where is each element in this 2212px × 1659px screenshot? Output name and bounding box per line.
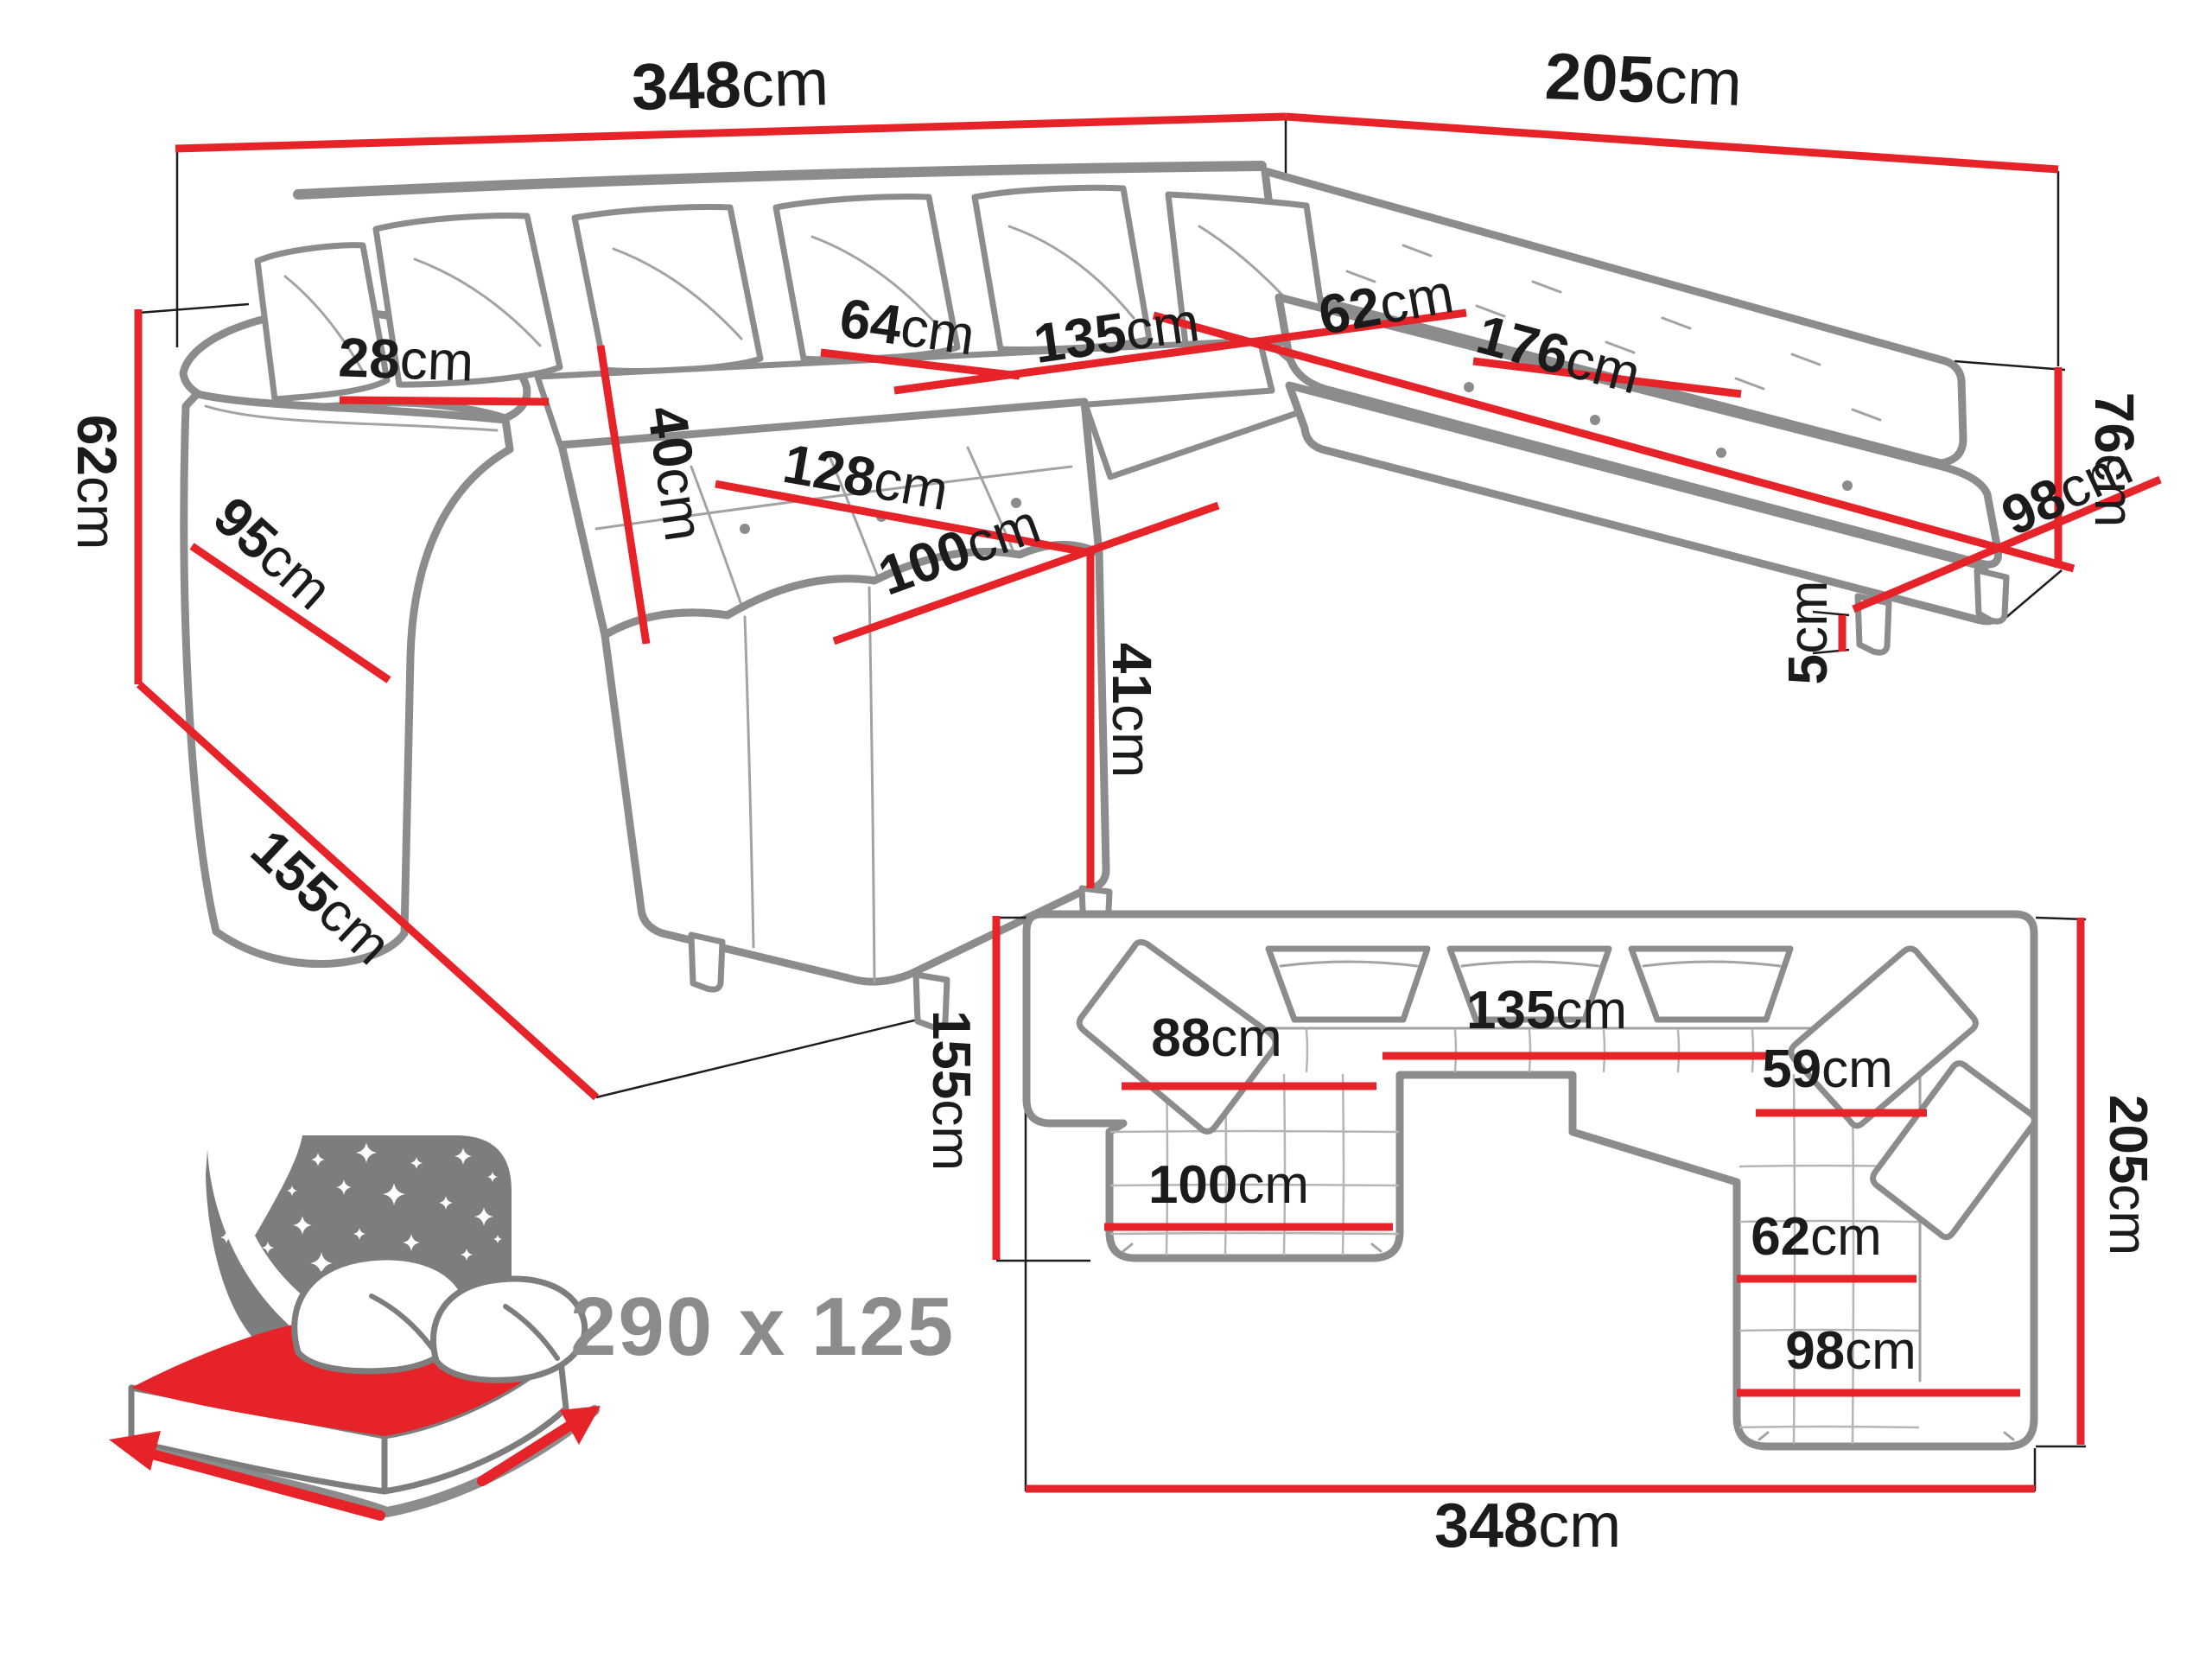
tick-armrest-top [138,304,249,313]
dim-label-41: 41cm [1101,643,1163,779]
plan-label-205: 205cm [2098,1095,2158,1255]
dim-line-28 [340,400,549,402]
tuft-button [740,524,750,534]
sofa-perspective [183,166,2006,1027]
tick-chaise-floor [596,1020,918,1097]
plan-label-135: 135cm [1466,981,1627,1040]
tick-backrest-bottom [2005,570,2062,619]
tuft-button [1716,448,1726,458]
dim-label-348: 348cm [631,46,829,124]
tuft-button [1464,382,1474,392]
tuft-button [1842,480,1853,491]
diagram-page: 348cm 205cm 76cm 62cm 95cm 155cm 28cm 40… [0,0,2212,1659]
dim-label-28: 28cm [338,326,475,392]
plan-label-59: 59cm [1762,1039,1893,1099]
bed-arrowhead-left [109,1431,161,1471]
dim-label-98: 98cm [1993,434,2141,547]
top-view: 155cm 88cm 135cm 59cm 100cm 62cm 98cm 20… [921,914,2158,1560]
dim-line-205 [1286,117,2058,169]
tuft-button [1590,415,1600,425]
dim-label-5: 5cm [1777,581,1839,685]
plan-label-62: 62cm [1751,1207,1882,1267]
plan-cushion-1 [1268,949,1427,1020]
plan-label-98: 98cm [1785,1321,1916,1381]
plan-label-100: 100cm [1148,1155,1309,1215]
chaise-leg [691,935,722,989]
plan-cushion-3 [1631,949,1790,1020]
plan-label-348: 348cm [1434,1491,1621,1560]
sleeping-function-icon: 290 x 125 [109,1135,955,1516]
dim-label-205: 205cm [1544,40,1744,120]
tick-backrest-top [1955,361,2065,370]
plan-label-155: 155cm [921,1010,981,1171]
sleeping-size-label: 290 x 125 [570,1281,955,1373]
dim-label-62-left: 62cm [66,415,128,550]
bed-pillow-2 [433,1279,584,1380]
sofa-dimension-diagram: 348cm 205cm 76cm 62cm 95cm 155cm 28cm 40… [0,0,2212,1659]
plan-label-88: 88cm [1151,1008,1282,1068]
sofa-leg [1977,570,2006,621]
